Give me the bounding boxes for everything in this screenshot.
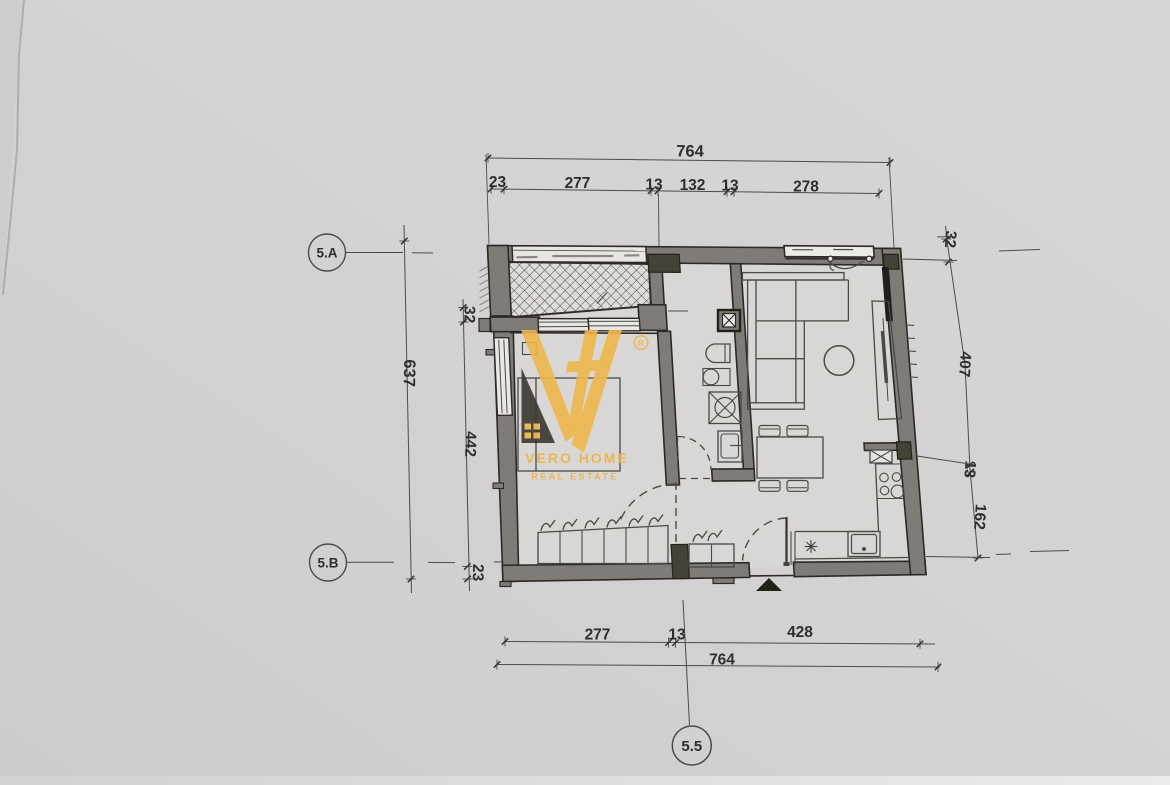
svg-text:637: 637 bbox=[400, 359, 418, 387]
svg-text:R: R bbox=[638, 338, 644, 348]
svg-text:5.5: 5.5 bbox=[681, 738, 702, 755]
svg-text:13: 13 bbox=[721, 177, 739, 194]
svg-text:32: 32 bbox=[941, 230, 959, 248]
svg-text:277: 277 bbox=[565, 175, 591, 192]
svg-text:23: 23 bbox=[489, 174, 507, 191]
svg-text:428: 428 bbox=[787, 624, 813, 641]
svg-text:5.B: 5.B bbox=[317, 556, 338, 571]
svg-text:32: 32 bbox=[460, 306, 477, 324]
svg-text:REAL ESTATE: REAL ESTATE bbox=[531, 472, 618, 482]
svg-text:162: 162 bbox=[970, 503, 989, 530]
svg-text:132: 132 bbox=[680, 177, 706, 194]
svg-text:13: 13 bbox=[645, 176, 663, 193]
svg-text:278: 278 bbox=[793, 179, 819, 196]
svg-text:VERO HOME: VERO HOME bbox=[525, 450, 629, 466]
svg-text:442: 442 bbox=[461, 431, 478, 457]
svg-text:5.A: 5.A bbox=[316, 246, 337, 261]
svg-text:407: 407 bbox=[955, 351, 974, 378]
svg-text:764: 764 bbox=[709, 652, 735, 669]
svg-text:13: 13 bbox=[668, 627, 686, 644]
svg-text:277: 277 bbox=[585, 627, 611, 644]
svg-text:23: 23 bbox=[469, 564, 486, 582]
svg-text:764: 764 bbox=[676, 142, 705, 160]
